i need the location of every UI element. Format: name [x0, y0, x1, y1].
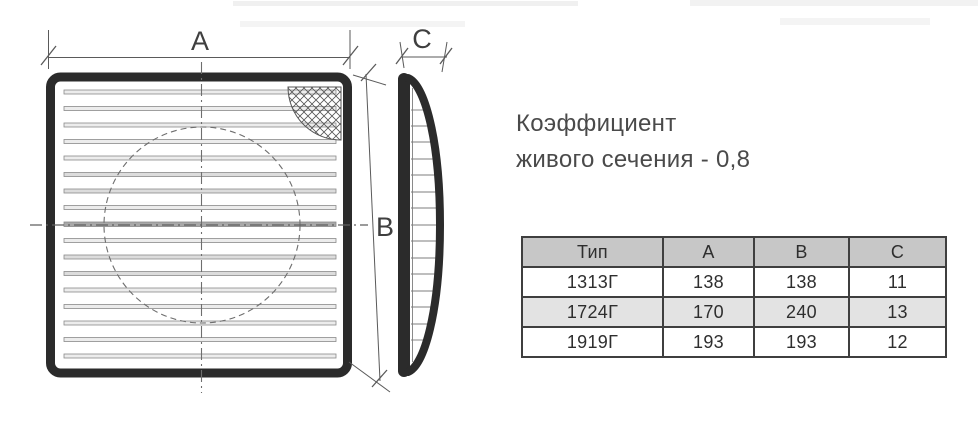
- cell-b: 193: [754, 327, 849, 357]
- cell-type: 1724Г: [522, 297, 663, 327]
- cell-type: 1919Г: [522, 327, 663, 357]
- side-view: [398, 73, 440, 377]
- coefficient-note-line1: Коэффициент: [516, 106, 750, 142]
- cell-b: 240: [754, 297, 849, 327]
- column-header-a: A: [663, 237, 754, 267]
- column-header-type: Тип: [522, 237, 663, 267]
- cell-a: 193: [663, 327, 754, 357]
- table-row: 1313Г 138 138 11: [522, 267, 946, 297]
- dim-label-c: C: [412, 24, 432, 54]
- column-header-c: C: [849, 237, 946, 267]
- coefficient-note: Коэффициент живого сечения - 0,8: [516, 106, 750, 178]
- cell-c: 13: [849, 297, 946, 327]
- cell-c: 12: [849, 327, 946, 357]
- page: A B C Коэффициент живого сечения - 0,8: [0, 0, 979, 421]
- table-row: 1724Г 170 240 13: [522, 297, 946, 327]
- dimensions-table: Тип A B C 1313Г 138 138 11 1724Г 170 240…: [521, 236, 947, 358]
- column-header-b: B: [754, 237, 849, 267]
- technical-drawing: A B C: [0, 0, 500, 421]
- dim-label-b: B: [376, 212, 394, 242]
- cell-a: 170: [663, 297, 754, 327]
- front-view: [30, 62, 368, 393]
- scan-artifact: [690, 0, 978, 6]
- dim-label-a: A: [191, 26, 209, 56]
- cell-type: 1313Г: [522, 267, 663, 297]
- cell-c: 11: [849, 267, 946, 297]
- cell-b: 138: [754, 267, 849, 297]
- coefficient-note-line2: живого сечения - 0,8: [516, 142, 750, 178]
- side-view-back-face: [398, 73, 410, 377]
- scan-artifact: [780, 18, 930, 25]
- cell-a: 138: [663, 267, 754, 297]
- table-header-row: Тип A B C: [522, 237, 946, 267]
- table-row: 1919Г 193 193 12: [522, 327, 946, 357]
- center-slat: [64, 222, 336, 227]
